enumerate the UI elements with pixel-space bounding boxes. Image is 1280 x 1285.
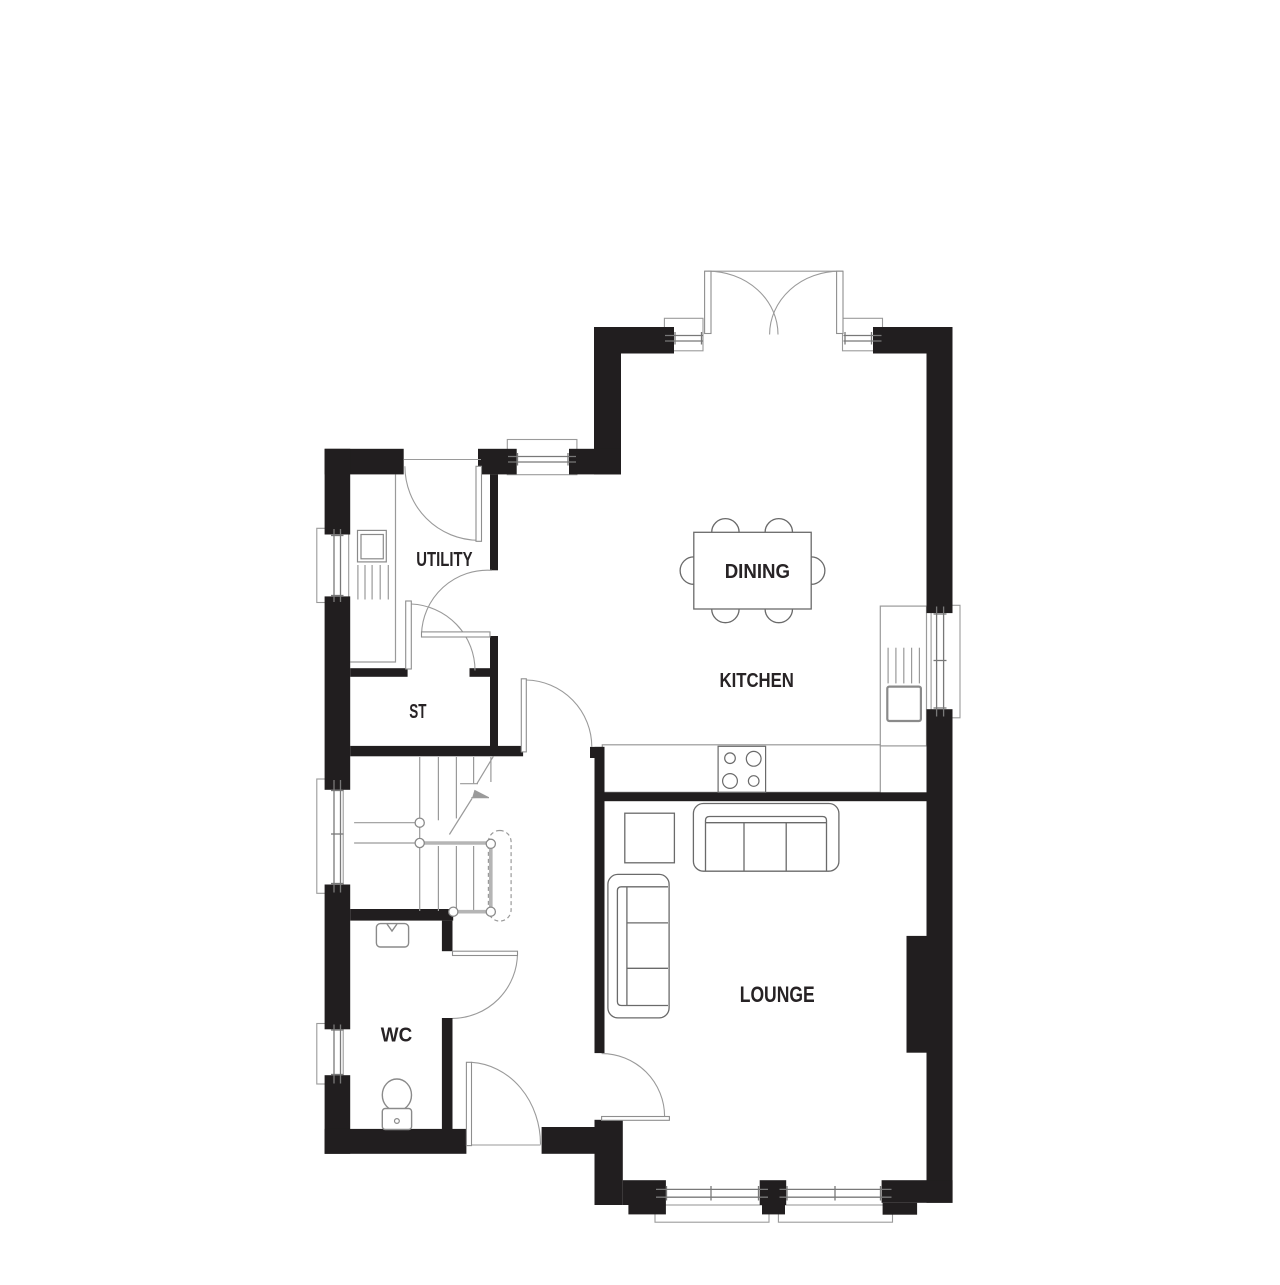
svg-text:WC: WC [381, 1025, 412, 1047]
svg-text:DINING: DINING [725, 561, 790, 583]
svg-text:ST: ST [409, 701, 426, 723]
svg-text:KITCHEN: KITCHEN [720, 670, 794, 692]
svg-text:LOUNGE: LOUNGE [740, 982, 815, 1007]
svg-text:UTILITY: UTILITY [416, 549, 473, 571]
